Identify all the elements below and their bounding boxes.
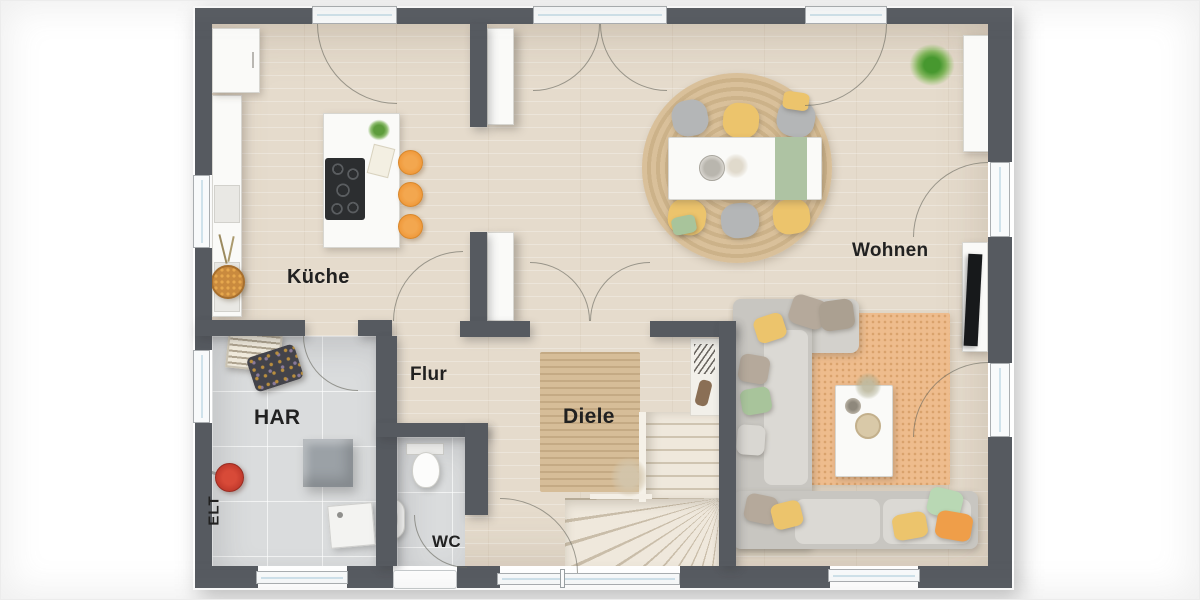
glass: [502, 578, 675, 580]
glass: [810, 14, 882, 16]
wall-top: [195, 8, 312, 24]
terrace-double-door: [533, 6, 667, 24]
room-label-flur: Flur: [410, 364, 447, 386]
floor-plan: Küche Wohnen Flur Diele HAR WC ELT: [0, 0, 1200, 600]
room-label-wc: WC: [432, 532, 461, 552]
window-har-bottom: [256, 571, 348, 584]
wall-bottom: [457, 566, 500, 588]
wall-kitchen-har: [358, 320, 392, 336]
window-wc-frosted: [393, 570, 457, 589]
room-label-kueche: Küche: [287, 266, 350, 289]
wall-kitchen-har: [195, 320, 305, 336]
wall-right: [988, 237, 1012, 363]
window-kitchen-left: [193, 175, 210, 248]
glass: [201, 355, 203, 418]
wall-right: [988, 437, 1012, 588]
wall-kitchen-divider: [470, 232, 487, 325]
wall-right: [988, 8, 1012, 162]
wall-top: [667, 8, 805, 24]
window-har-left: [193, 350, 210, 423]
glass: [833, 575, 915, 577]
room-label-wohnen: Wohnen: [852, 240, 928, 262]
entrance-door-leaf: [560, 569, 565, 588]
terrace-door-kitchen: [312, 6, 397, 24]
glass: [538, 14, 662, 16]
wall-top: [397, 8, 533, 24]
glass: [261, 577, 343, 579]
wall-wc-right: [465, 423, 488, 515]
terrace-door-right-2: [990, 363, 1010, 437]
wall-kitchen-divider: [470, 24, 487, 127]
wall-stair-side: [719, 321, 736, 566]
wall-har-wc: [376, 336, 397, 566]
wall-left: [195, 8, 212, 175]
glass: [201, 180, 203, 243]
wall-bottom: [680, 566, 830, 588]
terrace-door-right-1: [990, 162, 1010, 237]
wall-diele-top: [460, 321, 530, 337]
glass: [999, 368, 1001, 432]
window-living-bottom: [828, 569, 920, 582]
glass: [999, 167, 1001, 232]
room-label-har: HAR: [254, 406, 300, 430]
terrace-door-living: [805, 6, 887, 24]
entrance-door: [497, 573, 680, 585]
room-label-diele: Diele: [563, 405, 615, 429]
glass: [317, 14, 392, 16]
room-label-elt: ELT: [206, 489, 223, 533]
wall-bottom: [347, 566, 393, 588]
